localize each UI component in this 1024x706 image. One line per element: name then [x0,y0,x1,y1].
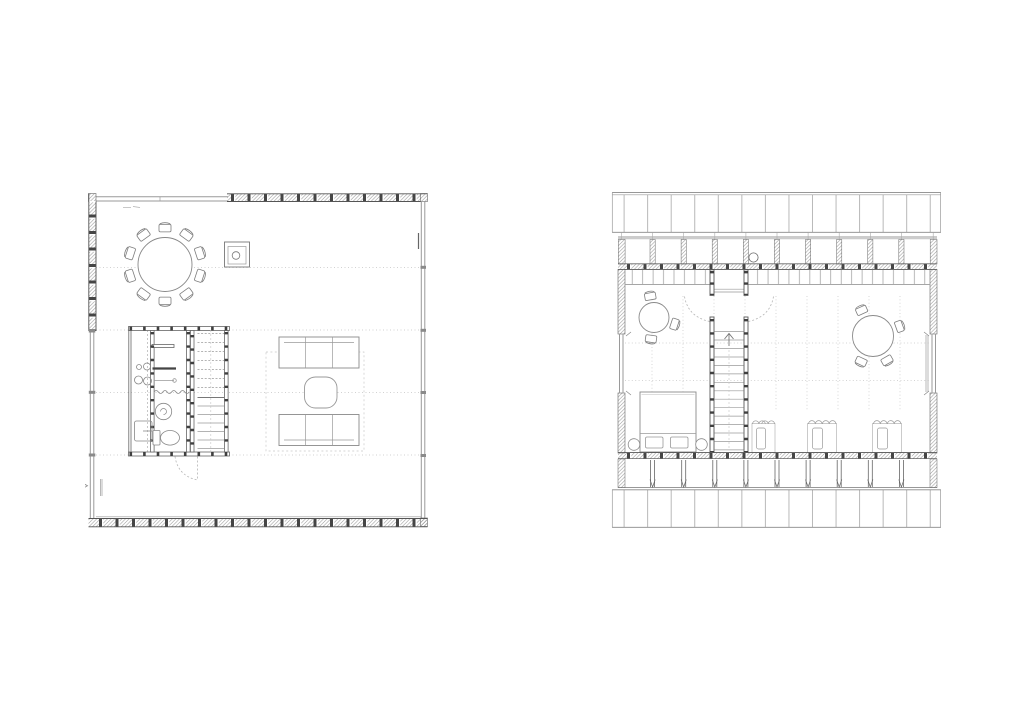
kitchen-fixtures [135,363,153,441]
annotation-mark [123,207,140,208]
piers [651,460,904,487]
small-table-group [639,290,681,344]
wall-studs [130,329,230,455]
sofa [279,415,359,446]
bathroom-fixtures [153,369,190,446]
wardrobe [752,421,775,453]
right-gable-wall [924,269,937,453]
wood-stove [225,242,250,267]
corner-block-tl [89,194,97,202]
door-swing [175,457,198,481]
roof-plane-bottom [612,490,941,528]
gable-window [926,334,936,393]
top-glazing [96,197,228,201]
bottom-pier-band [618,459,937,488]
gable-window [620,334,624,393]
large-table-group [853,304,906,369]
side-stool [628,439,640,451]
cooktop-burner [135,376,143,384]
sink-bowl [144,363,151,370]
terrace-piers [618,240,937,265]
roof-plane-top [612,193,941,233]
staircase-up [685,270,774,453]
dining-table [138,238,192,292]
wardrobe [808,421,837,453]
ground-floor-plan [85,190,430,530]
section-marker-icon [85,482,88,491]
right-glazing [419,201,427,519]
top-insulated-wall [227,194,427,202]
coffee-table [305,377,338,408]
chimney [749,253,758,262]
left-gable-wall [618,269,631,453]
dining-table-group [123,223,206,307]
shower-basin [155,403,171,419]
pillow [646,437,664,448]
stair-walls [710,270,748,453]
corner-block-tr [421,194,428,202]
staircase [198,330,225,452]
knee-wall-band [626,270,930,285]
terrace-band [618,232,937,264]
door-swing [685,297,774,322]
bed-group [628,392,707,452]
service-core [129,327,230,481]
shower-curtain [154,391,189,394]
top-insulated-wall [618,264,937,270]
round-table-large [853,316,894,357]
pier-connectors [622,232,934,239]
toilet-bowl [161,431,180,446]
living-group [266,337,364,451]
left-glazing [89,329,102,519]
wardrobes [752,421,902,453]
drawing-sheet [0,0,1024,706]
sofa [279,337,359,368]
bottom-insulated-wall [89,517,428,527]
round-table-small [639,303,669,333]
left-insulated-wall [89,194,97,332]
side-stool [696,439,708,451]
pier-feet [650,480,904,488]
wardrobe [873,421,902,453]
bottom-insulated-wall [618,453,937,459]
toilet-tank [153,431,160,446]
pillow [671,437,689,448]
sink-bowl-small [137,365,142,370]
exterior-walls [89,194,428,527]
upper-floor-plan [610,190,943,530]
